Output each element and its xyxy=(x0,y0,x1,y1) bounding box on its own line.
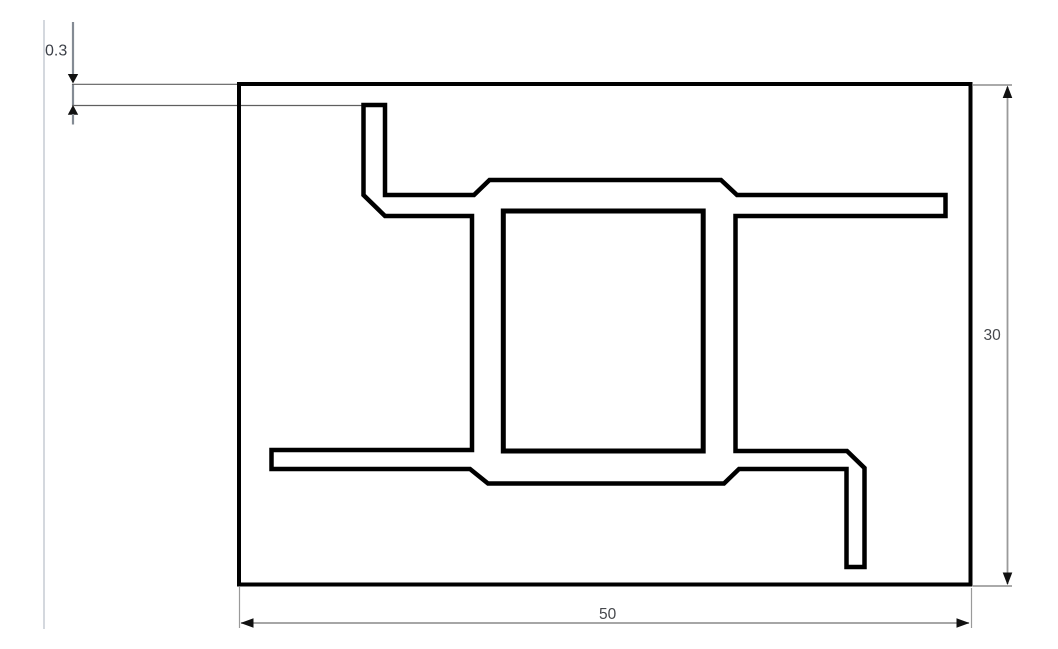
svg-text:30: 30 xyxy=(984,327,1002,344)
svg-text:0.3: 0.3 xyxy=(45,43,67,60)
svg-text:50: 50 xyxy=(599,606,617,623)
